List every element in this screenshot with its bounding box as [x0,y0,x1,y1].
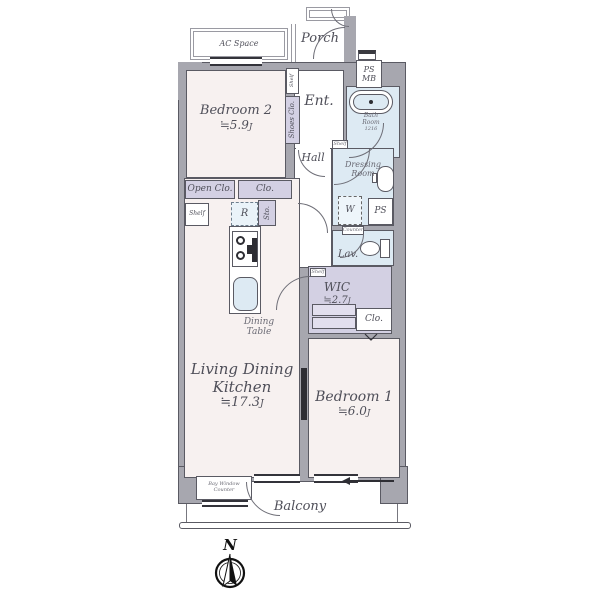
wic-area: ≒2.7J [323,295,350,307]
entrance-room [294,70,344,150]
dining-line1: Dining [244,317,274,327]
hall-label: Hall [296,151,330,166]
compass: N [204,536,256,594]
window-slide-arrow-head [342,477,350,485]
bedroom2-area: ≒5.9J [220,119,253,133]
balcony-left-line [186,504,187,522]
washing-machine: W [338,196,362,225]
intercom-box [358,50,376,60]
ac-space-label: AC Space [191,29,287,59]
stove-burner-2 [236,251,245,260]
ps-label: PS [364,65,375,74]
dressing-line2: Room [351,169,374,178]
window-slide-arrow-line [350,480,394,482]
pipe-meter-box: PS MB [356,60,382,88]
pipe-space-box: PS [368,198,393,225]
bedroom1-area: ≒6.0J [338,405,371,419]
bedroom2-label: Bedroom 2 ≒5.9J [186,100,286,136]
bedroom1-label: Bedroom 1 ≒6.0J [308,386,400,422]
ldk-area: ≒17.3J [220,396,264,411]
ldk-label: Living Dining Kitchen ≒17.3J [184,358,300,414]
balcony-label: Balcony [262,498,338,516]
bay-window [202,500,248,507]
stove-grill-arm [247,245,253,254]
dressing-label: Dressing Room [334,158,392,180]
wic-shelf: Shelf [310,268,326,277]
dining-table-label: Dining Table [236,316,282,338]
balcony-railing [179,522,411,529]
bathtub [349,90,393,114]
entrance-shelf: Shelf [286,68,299,94]
wic-rack-2 [312,317,356,329]
storage: Sto. [258,200,276,226]
stove [232,231,258,267]
bay-window-counter: Bay Window Counter [196,476,252,500]
kitchen-sink [233,277,258,311]
dressing-shelf: Shelf [332,140,348,149]
entrance-label: Ent. [294,92,344,110]
bay-window-line2: Counter [214,488,235,494]
floor-plan: AC Space Porch PS MB Bath Room 1216 Shel… [0,0,600,600]
dining-line2: Table [247,327,272,337]
closet-wic: Clo. [356,308,392,331]
shelf-label: Shelf [290,74,296,87]
bedroom2-name: Bedroom 2 [200,104,272,119]
bathtub-drain [369,100,373,104]
kitchen-counter [229,226,261,314]
porch-door-arc [331,9,349,27]
storage-label: Sto. [263,206,271,220]
wic-name: WIC [324,281,350,295]
toilet-bowl [360,241,380,256]
toilet-tank [380,239,390,258]
bifold-door-mark [364,333,378,341]
dressing-line1: Dressing [345,160,381,169]
stove-burner-1 [236,236,245,245]
bedroom1-name: Bedroom 1 [315,389,393,405]
open-closet: Open Clo. [185,180,235,199]
balcony-right-line [397,504,398,522]
ldk-name-line2: Kitchen [213,379,272,396]
wic-label: WIC ≒2.7J [310,280,364,308]
kitchen-shelf: Shelf [185,203,209,226]
compass-north-label: N [222,536,238,554]
refrigerator: R [231,202,258,226]
ac-space-area: AC Space [190,28,288,60]
bedroom1-sliding-door [301,368,307,420]
closet-top: Clo. [238,180,292,199]
bedroom2-window [210,57,262,66]
mb-label: MB [362,74,376,83]
ldk-name-line1: Living Dining [191,361,294,378]
